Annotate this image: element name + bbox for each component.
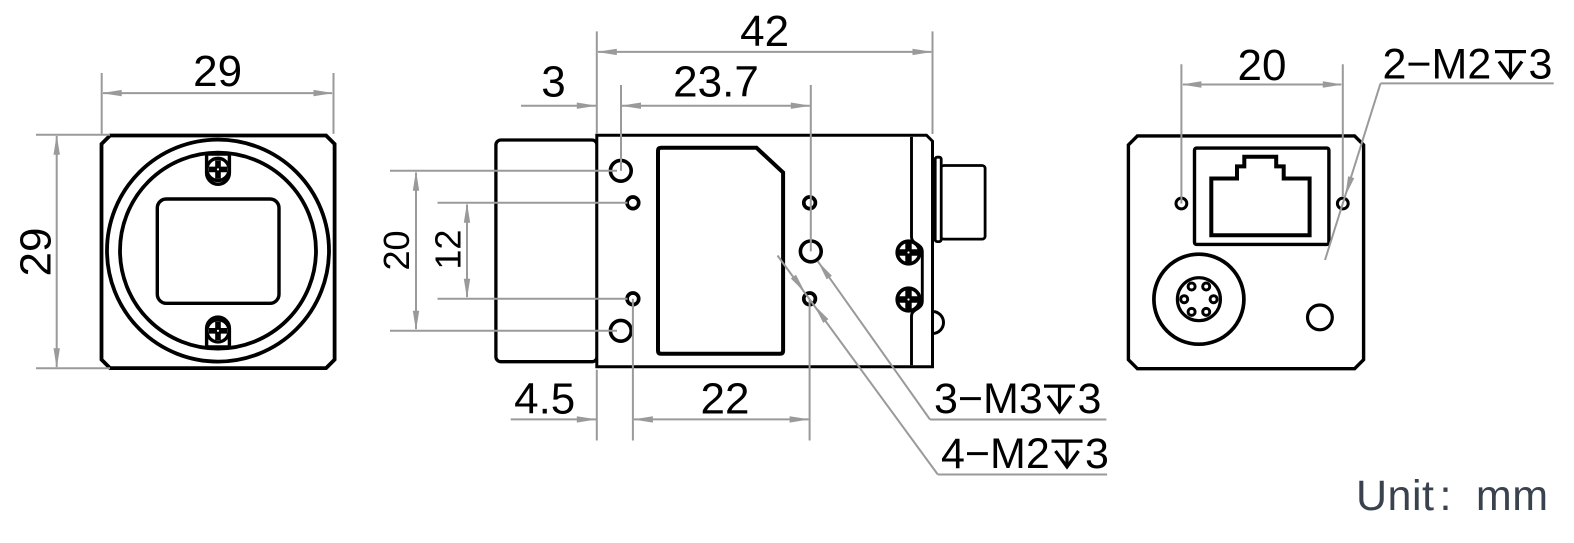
svg-text:22: 22 xyxy=(701,375,750,424)
svg-text:3: 3 xyxy=(1529,41,1553,89)
svg-text:4−M2: 4−M2 xyxy=(941,430,1050,478)
svg-text:20: 20 xyxy=(376,230,417,270)
svg-text:3: 3 xyxy=(541,58,565,107)
svg-text:2−M2: 2−M2 xyxy=(1383,41,1492,89)
svg-text:3−M3: 3−M3 xyxy=(934,375,1043,423)
svg-text:29: 29 xyxy=(193,47,242,96)
svg-text:3: 3 xyxy=(1078,375,1102,423)
svg-text:20: 20 xyxy=(1238,41,1287,90)
svg-text:12: 12 xyxy=(427,230,468,270)
svg-text:23.7: 23.7 xyxy=(673,58,759,107)
svg-text:3: 3 xyxy=(1085,430,1109,478)
svg-text:4.5: 4.5 xyxy=(514,375,575,424)
svg-text:42: 42 xyxy=(740,7,789,56)
svg-text:29: 29 xyxy=(12,228,61,277)
